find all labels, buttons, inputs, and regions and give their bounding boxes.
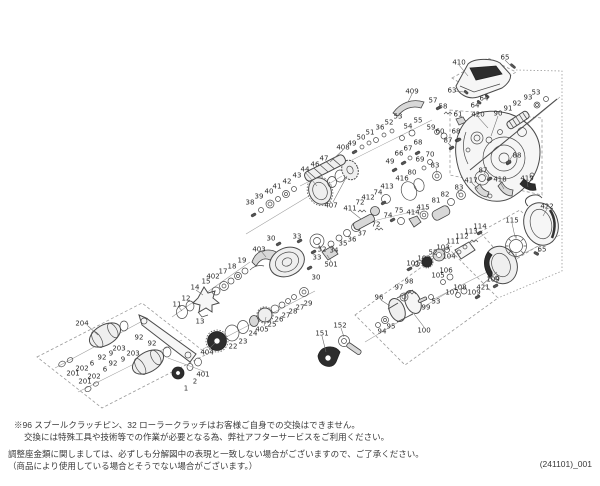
part-label-30: 30 <box>267 235 276 243</box>
part-label-19: 19 <box>238 257 247 265</box>
part-label-114: 114 <box>473 223 487 231</box>
part-label-92: 92 <box>98 354 107 362</box>
roller-clutch-drawing <box>250 223 361 283</box>
part-label-35: 35 <box>339 240 348 248</box>
part-label-65: 65 <box>501 54 510 62</box>
part-label-68: 68 <box>414 139 423 147</box>
part-label-98: 98 <box>405 278 414 286</box>
part-label-50: 50 <box>357 134 366 142</box>
exploded-parts-diagram: 4106563646440957586159604209091929353365… <box>0 0 600 486</box>
part-label-32: 32 <box>318 246 327 254</box>
footnote-line-1: ※96 スプールクラッチピン、32 ローラークラッチはお客様ご自身での交換はでき… <box>8 420 424 432</box>
part-label-34: 34 <box>330 247 339 255</box>
part-label-68: 68 <box>452 128 461 136</box>
part-label-418: 418 <box>493 176 506 184</box>
part-label-100: 100 <box>417 327 430 335</box>
part-label-87: 87 <box>444 137 453 145</box>
part-label-203: 203 <box>126 350 139 358</box>
part-label-421: 421 <box>476 284 489 292</box>
part-label-106: 106 <box>439 267 453 275</box>
part-label-151: 151 <box>315 330 328 338</box>
part-label-203: 203 <box>112 345 125 353</box>
part-label-413: 413 <box>380 183 393 191</box>
part-label-65: 65 <box>538 246 547 254</box>
part-label-53: 53 <box>394 113 403 121</box>
part-label-6: 6 <box>103 366 108 374</box>
part-label-417: 417 <box>464 177 477 185</box>
part-label-14: 14 <box>191 284 200 292</box>
part-label-44: 44 <box>301 166 310 174</box>
part-label-11: 11 <box>173 301 182 309</box>
drawing-layer <box>58 59 563 392</box>
part-label-83: 83 <box>455 184 464 192</box>
part-label-64: 64 <box>480 95 489 103</box>
part-label-404: 404 <box>200 349 214 357</box>
part-label-152: 152 <box>333 322 346 330</box>
part-label-36: 36 <box>348 236 357 244</box>
part-label-6: 6 <box>90 360 95 368</box>
part-label-90: 90 <box>494 110 503 118</box>
leader-line <box>512 223 515 237</box>
part-label-419: 419 <box>520 175 533 183</box>
part-label-87: 87 <box>479 167 488 175</box>
part-label-30: 30 <box>312 274 321 282</box>
part-label-59: 59 <box>427 124 436 132</box>
part-label-39: 39 <box>255 193 264 201</box>
part-label-37: 37 <box>358 230 367 238</box>
part-label-1: 1 <box>184 385 188 393</box>
leader-line <box>414 314 424 327</box>
part-label-80: 80 <box>408 169 417 177</box>
part-label-104: 104 <box>442 253 456 261</box>
part-label-204: 204 <box>75 320 89 328</box>
part-label-52: 52 <box>385 119 394 127</box>
part-label-92: 92 <box>513 100 522 108</box>
part-label-408: 408 <box>336 144 349 152</box>
document-number: (241101)_001 <box>540 459 592 469</box>
part-label-13: 13 <box>196 318 205 326</box>
part-label-410: 410 <box>452 59 465 67</box>
part-label-67: 67 <box>404 145 413 153</box>
part-label-92: 92 <box>109 360 118 368</box>
part-label-58: 58 <box>439 103 448 111</box>
part-label-97: 97 <box>395 284 404 292</box>
part-label-64: 64 <box>471 102 480 110</box>
part-label-29: 29 <box>304 300 313 308</box>
part-label-201: 201 <box>78 378 91 386</box>
part-label-501: 501 <box>324 261 337 269</box>
part-label-57: 57 <box>429 97 438 105</box>
part-label-108: 108 <box>453 284 466 292</box>
part-label-91: 91 <box>504 105 513 113</box>
footnotes: ※96 スプールクラッチピン、32 ローラークラッチはお客様ご自身での交換はでき… <box>8 420 424 472</box>
part-label-401: 401 <box>196 371 209 379</box>
part-label-74: 74 <box>384 212 393 220</box>
main-gear-drawing <box>206 288 309 353</box>
part-label-38: 38 <box>246 199 255 207</box>
part-label-422: 422 <box>540 203 553 211</box>
part-label-61: 61 <box>454 111 463 119</box>
part-label-22: 22 <box>229 343 238 351</box>
part-label-17: 17 <box>219 268 228 276</box>
part-label-33: 33 <box>313 254 322 262</box>
part-label-412: 412 <box>361 194 374 202</box>
part-label-41: 41 <box>273 183 282 191</box>
part-label-70: 70 <box>426 151 435 159</box>
part-label-53: 53 <box>532 89 541 97</box>
part-label-409: 409 <box>405 88 418 96</box>
part-label-33: 33 <box>293 233 302 241</box>
part-labels: 4106563646440957586159604209091929353365… <box>66 54 553 393</box>
part-label-49: 49 <box>386 158 395 166</box>
footnote-line-3: 調整座金類に関しましては、必ずしも分解図中の表現と一致しない場合がございますので… <box>8 449 424 461</box>
part-label-69: 69 <box>416 156 425 164</box>
part-label-82: 82 <box>441 191 450 199</box>
part-label-51: 51 <box>366 129 375 137</box>
part-label-109: 109 <box>486 276 499 284</box>
part-label-54: 54 <box>404 123 413 131</box>
part-label-95: 95 <box>387 323 396 331</box>
part-label-75: 75 <box>395 207 404 215</box>
part-label-201: 201 <box>66 370 79 378</box>
part-label-72: 72 <box>372 221 381 229</box>
part-label-42: 42 <box>283 178 292 186</box>
clutch-bar-drawing <box>318 336 362 367</box>
part-label-47: 47 <box>320 155 329 163</box>
part-label-53: 53 <box>432 298 441 306</box>
part-label-18: 18 <box>228 263 237 271</box>
part-label-96: 96 <box>375 294 384 302</box>
part-label-60: 60 <box>436 128 445 136</box>
part-label-9: 9 <box>121 356 125 364</box>
part-label-92: 92 <box>148 340 157 348</box>
footnote-line-2: 交換には特殊工具や技術等での作業が必要となる為、弊社アフターサービスをご利用くだ… <box>8 432 424 444</box>
part-label-403: 403 <box>252 246 265 254</box>
part-label-12: 12 <box>182 295 191 303</box>
part-label-420: 420 <box>471 111 484 119</box>
part-label-2: 2 <box>193 378 197 386</box>
footnote-line-4: （商品により使用している場合とそうでない場合がございます。） <box>8 461 424 473</box>
part-label-81: 81 <box>432 197 441 205</box>
part-label-23: 23 <box>239 338 248 346</box>
part-label-83: 83 <box>431 162 440 170</box>
part-label-9: 9 <box>109 350 113 358</box>
part-label-55: 55 <box>414 117 423 125</box>
part-label-63: 63 <box>448 87 457 95</box>
part-label-115: 115 <box>505 217 518 225</box>
part-label-88: 88 <box>513 152 522 160</box>
parts-diagram-page: 4106563646440957586159604209091929353365… <box>0 0 600 486</box>
part-label-92: 92 <box>135 334 144 342</box>
part-label-415: 415 <box>416 204 429 212</box>
part-label-407: 407 <box>324 202 337 210</box>
part-label-99: 99 <box>422 304 431 312</box>
